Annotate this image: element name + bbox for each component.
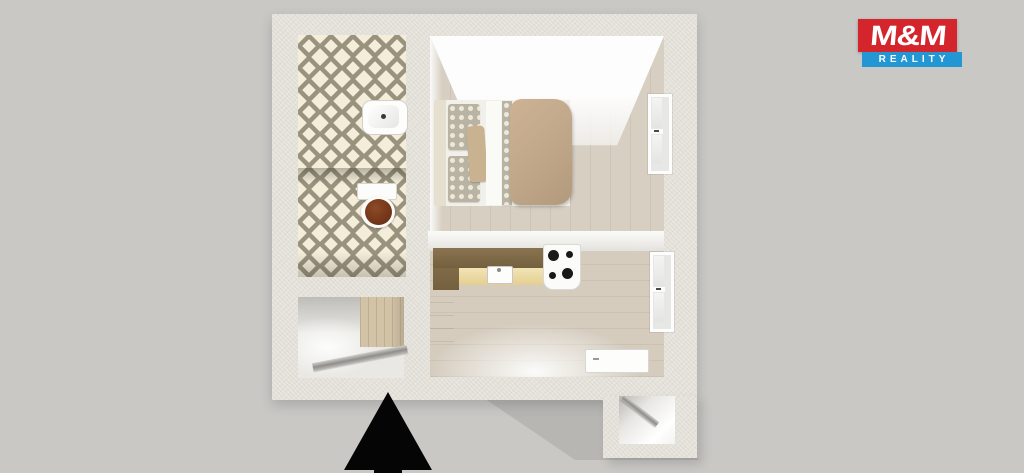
- stove-burner-small-1: [566, 251, 573, 258]
- agency-logo: M&M: [858, 19, 957, 52]
- stove-burner-small-2: [549, 272, 556, 279]
- agency-logo-tagline-bar: REALITY: [862, 52, 962, 67]
- bedroom-window-handle: [654, 130, 659, 132]
- bed-duvet: [510, 99, 572, 205]
- kitchen-faucet: [497, 268, 501, 272]
- kitchen-window-pane-bottom: [654, 293, 664, 322]
- toilet-seat-wood: [365, 199, 392, 225]
- bedroom-window: [648, 94, 672, 174]
- agency-logo-tagline: REALITY: [875, 54, 950, 65]
- bed-sheet-band: [486, 101, 502, 205]
- stove-burner-large-2: [562, 268, 573, 279]
- stove-burner-large-1: [548, 250, 559, 261]
- bathroom-divider-shadow: [298, 168, 406, 184]
- bathroom-tiled-area: [298, 35, 406, 277]
- wc-end-shadow: [298, 252, 406, 277]
- kitchen-window-pane-top: [654, 256, 664, 286]
- floor-plan-render: M&M REALITY: [0, 0, 1024, 473]
- bed-headboard: [434, 100, 446, 206]
- entrance-arrow-icon: [342, 391, 434, 473]
- kitchen-window: [650, 252, 674, 332]
- kitchen-tall-cabinet: [430, 292, 454, 342]
- kitchen-window-handle: [656, 288, 661, 290]
- hallway-wood-panel: [360, 297, 404, 347]
- bathtub-drain: [381, 114, 386, 119]
- bedroom-window-pane-bottom: [652, 135, 662, 164]
- bedroom-window-pane-top: [652, 98, 662, 128]
- door-panel-handle: [593, 358, 599, 360]
- bathroom-tile-pattern: [298, 35, 406, 277]
- agency-logo-name: M&M: [868, 20, 946, 52]
- kitchen-counter-top: [433, 248, 543, 268]
- kitchen-open-door-panel: [585, 349, 649, 373]
- bed-pillow-accent: [466, 125, 488, 182]
